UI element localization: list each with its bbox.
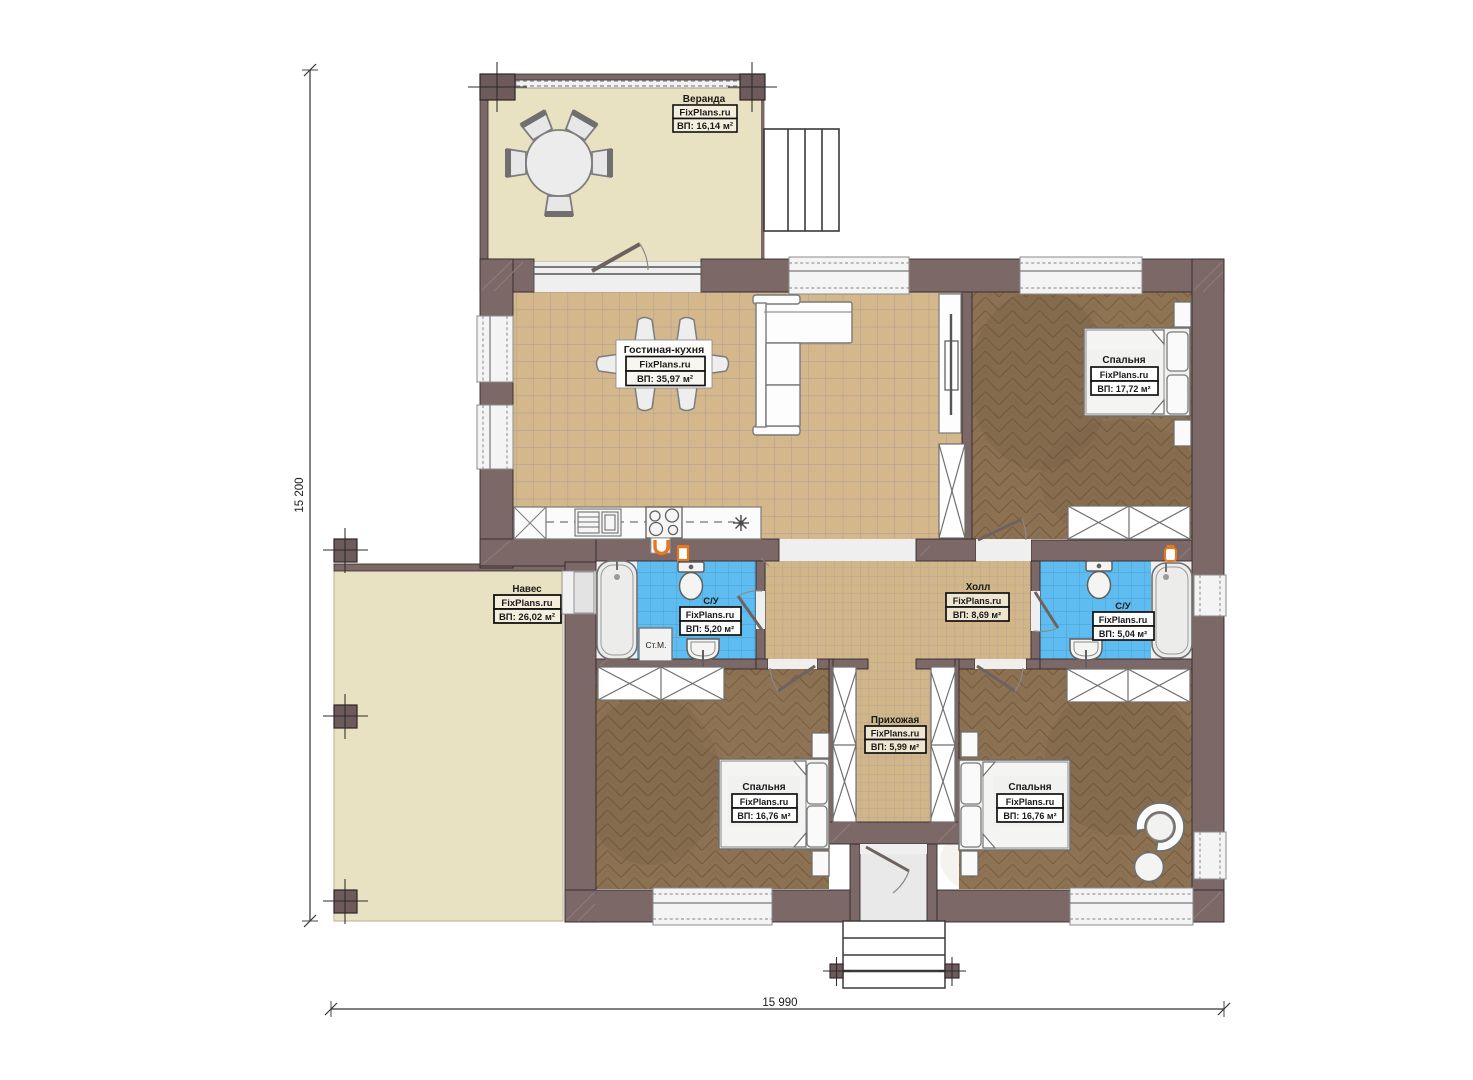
svg-text:Спальня: Спальня	[742, 782, 785, 793]
svg-text:Спальня: Спальня	[1102, 355, 1145, 366]
svg-text:FixPlans.ru: FixPlans.ru	[1099, 615, 1148, 625]
svg-text:15 990: 15 990	[762, 997, 797, 1009]
svg-text:С/У: С/У	[1115, 601, 1131, 612]
svg-text:ВП: 26,02 м²: ВП: 26,02 м²	[499, 612, 555, 623]
svg-text:ВП: 8,69 м²: ВП: 8,69 м²	[953, 610, 1001, 620]
svg-text:FixPlans.ru: FixPlans.ru	[686, 610, 735, 620]
svg-text:ВП: 5,04 м²: ВП: 5,04 м²	[1099, 629, 1147, 639]
svg-text:Навес: Навес	[512, 584, 542, 595]
svg-text:ВП: 5,99 м²: ВП: 5,99 м²	[871, 742, 919, 752]
svg-text:ВП: 16,76 м²: ВП: 16,76 м²	[737, 811, 790, 821]
svg-text:Ст.М.: Ст.М.	[646, 640, 667, 650]
svg-text:Спальня: Спальня	[1008, 782, 1051, 793]
svg-text:FixPlans.ru: FixPlans.ru	[740, 797, 789, 807]
svg-text:Холл: Холл	[966, 582, 991, 593]
svg-text:ВП: 16,14 м²: ВП: 16,14 м²	[677, 121, 733, 132]
svg-text:ВП: 16,76 м²: ВП: 16,76 м²	[1003, 811, 1056, 821]
svg-text:FixPlans.ru: FixPlans.ru	[501, 598, 552, 609]
svg-text:ВП: 17,72 м²: ВП: 17,72 м²	[1097, 384, 1150, 394]
svg-text:ВП: 5,20 м²: ВП: 5,20 м²	[686, 624, 734, 634]
svg-text:FixPlans.ru: FixPlans.ru	[679, 108, 730, 119]
svg-text:Прихожая: Прихожая	[871, 715, 920, 726]
svg-text:15 200: 15 200	[294, 477, 306, 512]
svg-text:FixPlans.ru: FixPlans.ru	[953, 596, 1002, 606]
svg-text:Гостиная-кухня: Гостиная-кухня	[624, 344, 704, 356]
svg-text:С/У: С/У	[703, 596, 719, 607]
svg-text:FixPlans.ru: FixPlans.ru	[1100, 370, 1149, 380]
svg-text:ВП: 35,97 м²: ВП: 35,97 м²	[637, 374, 693, 385]
svg-text:FixPlans.ru: FixPlans.ru	[1006, 797, 1055, 807]
svg-text:FixPlans.ru: FixPlans.ru	[871, 729, 920, 739]
svg-text:FixPlans.ru: FixPlans.ru	[639, 360, 690, 371]
svg-text:Веранда: Веранда	[683, 94, 726, 105]
